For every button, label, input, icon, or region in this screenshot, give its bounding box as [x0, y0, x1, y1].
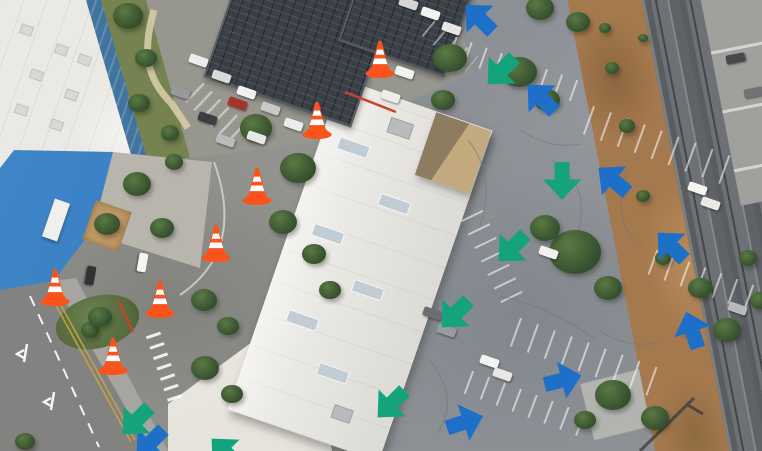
- annotation-overlay-layer: [0, 0, 762, 451]
- green-direction-arrow-icon: [427, 286, 484, 343]
- traffic-cone-icon: [97, 336, 129, 376]
- green-direction-arrow-icon: [197, 424, 254, 451]
- blue-direction-arrow-icon: [585, 152, 641, 208]
- blue-direction-arrow-icon: [440, 397, 490, 447]
- green-direction-arrow-icon: [542, 161, 582, 201]
- traffic-cone-icon: [200, 223, 232, 263]
- green-direction-arrow-icon: [363, 376, 420, 433]
- traffic-cone-icon: [144, 279, 176, 319]
- blue-direction-arrow-icon: [539, 356, 587, 404]
- blue-direction-arrow-icon: [667, 305, 717, 355]
- traffic-cone-icon: [364, 39, 396, 79]
- blue-direction-arrow-icon: [643, 218, 700, 275]
- satellite-map-canvas: [0, 0, 762, 451]
- traffic-cone-icon: [241, 166, 273, 206]
- traffic-cone-icon: [39, 267, 71, 307]
- blue-direction-arrow-icon: [451, 0, 508, 46]
- green-direction-arrow-icon: [484, 220, 541, 277]
- traffic-cone-icon: [301, 100, 333, 140]
